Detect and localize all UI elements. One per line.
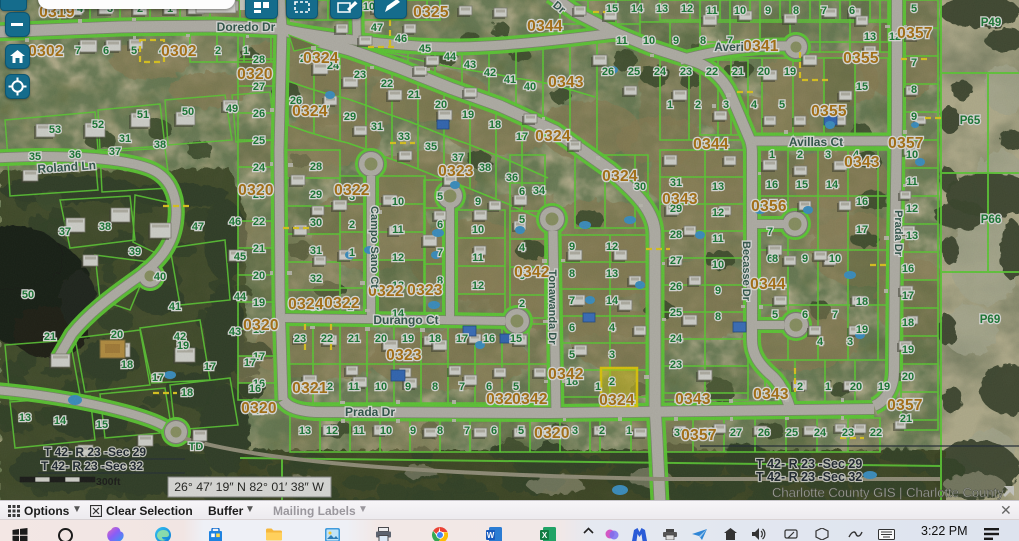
svg-text:W: W [487,531,495,540]
svg-text:X: X [542,531,548,540]
